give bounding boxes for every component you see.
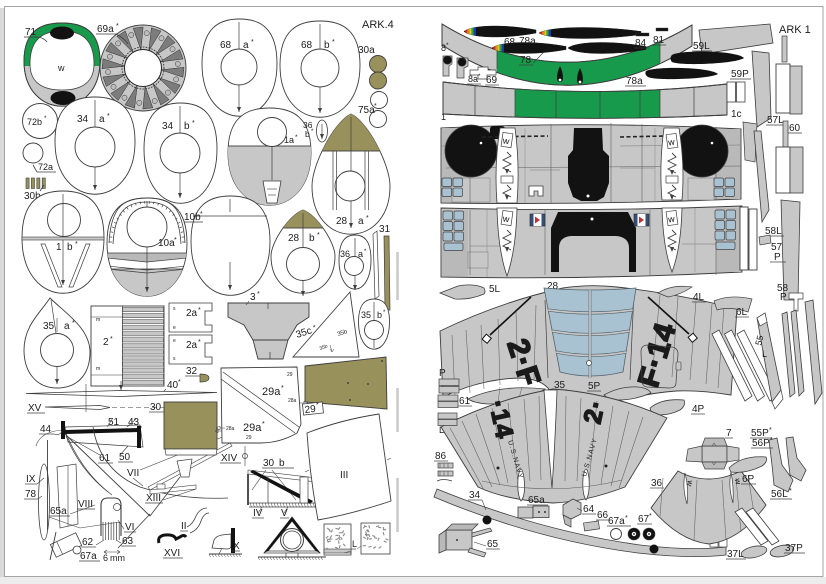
svg-text:64: 64 [583, 504, 595, 515]
svg-text:m: m [96, 366, 100, 372]
svg-text:a: a [243, 40, 249, 51]
svg-text:84: 84 [635, 38, 647, 49]
svg-text:e: e [173, 338, 176, 344]
svg-text:61: 61 [459, 396, 471, 407]
svg-text:*: * [317, 232, 320, 239]
svg-text:68: 68 [220, 40, 232, 51]
svg-text:*: * [110, 336, 113, 343]
svg-text:29: 29 [287, 372, 293, 378]
svg-text:*: * [649, 513, 652, 520]
svg-text:10a: 10a [158, 238, 175, 249]
svg-text:*: * [178, 379, 181, 386]
svg-text:60: 60 [789, 123, 801, 134]
svg-text:ARK 1: ARK 1 [779, 24, 811, 36]
svg-text:30: 30 [263, 458, 275, 469]
svg-text:30a: 30a [358, 45, 375, 56]
svg-text:69a: 69a [97, 24, 114, 35]
svg-text:b: b [324, 40, 330, 51]
svg-text:65: 65 [487, 539, 499, 550]
svg-text:6L: 6L [736, 307, 748, 318]
svg-text:67: 67 [638, 514, 650, 525]
svg-text:*: * [769, 427, 772, 434]
svg-text:VII: VII [127, 468, 139, 479]
svg-text:*: * [75, 241, 78, 248]
svg-text:m: m [96, 317, 100, 323]
svg-text:P: P [780, 292, 787, 303]
svg-text:b: b [309, 233, 315, 244]
svg-text:b: b [279, 458, 285, 469]
svg-text:28: 28 [288, 233, 300, 244]
svg-text:*: * [374, 103, 377, 110]
svg-text:30: 30 [150, 402, 162, 413]
svg-text:67a: 67a [80, 551, 97, 562]
svg-text:66: 66 [597, 510, 609, 521]
svg-text:4L: 4L [693, 292, 705, 303]
svg-text:XVI: XVI [164, 548, 180, 559]
svg-text:5L: 5L [489, 284, 501, 295]
svg-text:71: 71 [25, 27, 37, 38]
svg-text:*: * [198, 339, 201, 346]
svg-text:4P: 4P [692, 404, 705, 415]
svg-text:28a: 28a [288, 398, 297, 404]
svg-text:81: 81 [653, 35, 665, 46]
svg-text:28a: 28a [226, 426, 235, 432]
svg-text:62: 62 [82, 537, 94, 548]
svg-text:L: L [352, 539, 357, 549]
svg-text:44: 44 [40, 424, 52, 435]
svg-text:34: 34 [469, 490, 481, 501]
svg-text:75a: 75a [358, 105, 375, 116]
svg-text:36: 36 [340, 249, 350, 259]
svg-text:56P: 56P [752, 438, 770, 449]
svg-text:68: 68 [301, 40, 313, 51]
svg-text:32: 32 [186, 366, 198, 377]
svg-text:35: 35 [43, 321, 55, 332]
svg-text:mm: mm [110, 553, 125, 563]
svg-text:*: * [789, 488, 792, 495]
svg-text:31: 31 [379, 224, 391, 235]
svg-text:1a: 1a [284, 135, 294, 145]
svg-text:b: b [184, 121, 190, 132]
svg-text:35: 35 [361, 310, 371, 320]
svg-text:78: 78 [520, 55, 532, 66]
svg-text:34: 34 [162, 121, 174, 132]
svg-text:3: 3 [250, 292, 256, 303]
svg-text:XIV: XIV [221, 453, 237, 464]
svg-text:*: * [281, 385, 284, 392]
svg-text:6P: 6P [742, 474, 755, 485]
svg-text:2a: 2a [186, 308, 198, 319]
svg-text:10b: 10b [184, 212, 201, 223]
svg-text:P: P [774, 252, 781, 263]
svg-text:*: * [72, 320, 75, 327]
svg-text:a: a [64, 321, 70, 332]
svg-text:50: 50 [119, 452, 131, 463]
svg-text:II: II [181, 521, 187, 532]
svg-text:5P: 5P [588, 381, 601, 392]
svg-text:72a: 72a [38, 162, 53, 172]
svg-text:*: * [200, 211, 203, 218]
svg-text:28: 28 [336, 216, 348, 227]
svg-text:7: 7 [726, 428, 732, 439]
svg-text:*: * [116, 23, 119, 30]
svg-text:*: * [107, 113, 110, 120]
svg-text:2: 2 [103, 337, 109, 348]
svg-text:XV: XV [28, 403, 42, 414]
svg-text:1: 1 [441, 112, 446, 122]
svg-text:65a: 65a [528, 495, 545, 506]
svg-text:*: * [366, 215, 369, 222]
svg-text:*: * [332, 39, 335, 46]
svg-text:59P: 59P [731, 69, 749, 80]
svg-text:V: V [281, 508, 288, 519]
svg-text:*: * [251, 39, 254, 46]
svg-text:69: 69 [486, 75, 498, 86]
svg-text:72b: 72b [27, 117, 42, 127]
svg-text:86: 86 [435, 451, 447, 462]
svg-text:XIII: XIII [146, 493, 161, 504]
svg-text:29: 29 [304, 404, 317, 416]
svg-text:37P: 37P [785, 543, 803, 554]
svg-text:36: 36 [651, 478, 663, 489]
svg-text:w: w [57, 63, 65, 73]
svg-text:78a: 78a [519, 36, 536, 47]
svg-text:*: * [198, 307, 201, 314]
svg-text:*: * [262, 421, 265, 428]
svg-text:III: III [340, 470, 348, 481]
svg-text:*: * [770, 437, 773, 444]
svg-text:6: 6 [103, 553, 108, 563]
svg-text:P: P [439, 368, 446, 379]
svg-text:65a: 65a [50, 506, 67, 517]
svg-text:IV: IV [253, 508, 263, 519]
svg-text:68: 68 [504, 37, 516, 48]
svg-text:a: a [99, 114, 105, 125]
svg-text:2a: 2a [186, 340, 198, 351]
svg-text:VI: VI [125, 522, 134, 533]
svg-text:78: 78 [25, 489, 37, 500]
svg-text:59L: 59L [693, 41, 710, 52]
svg-text:*: * [192, 120, 195, 127]
svg-text:*: * [174, 237, 177, 244]
svg-text:L: L [762, 349, 767, 359]
svg-text:56L: 56L [771, 489, 788, 500]
svg-text:*: * [316, 402, 319, 409]
svg-text:29a: 29a [262, 386, 281, 398]
svg-text:e: e [173, 325, 176, 331]
svg-text:78a: 78a [626, 76, 643, 87]
svg-text:1c: 1c [731, 109, 742, 120]
svg-text:a: a [358, 216, 364, 227]
svg-text:29a: 29a [243, 422, 262, 434]
svg-text:a: a [358, 249, 363, 259]
svg-text:67a: 67a [608, 516, 625, 527]
svg-text:57L: 57L [767, 115, 784, 126]
svg-text:ARK.4: ARK.4 [362, 19, 394, 31]
svg-text:34: 34 [77, 114, 89, 125]
svg-text:40: 40 [167, 380, 179, 391]
svg-text:37L: 37L [727, 549, 744, 560]
svg-text:*: * [625, 515, 628, 522]
svg-text:b: b [305, 129, 310, 139]
svg-text:X: X [233, 541, 240, 552]
svg-text:1: 1 [56, 242, 62, 253]
svg-text:29: 29 [246, 435, 252, 441]
svg-text:8a: 8a [468, 74, 478, 84]
svg-text:IX: IX [26, 474, 36, 485]
svg-text:b: b [67, 242, 73, 253]
svg-text:b: b [377, 310, 382, 320]
svg-text:L: L [439, 425, 444, 435]
svg-text:*: * [257, 291, 260, 298]
